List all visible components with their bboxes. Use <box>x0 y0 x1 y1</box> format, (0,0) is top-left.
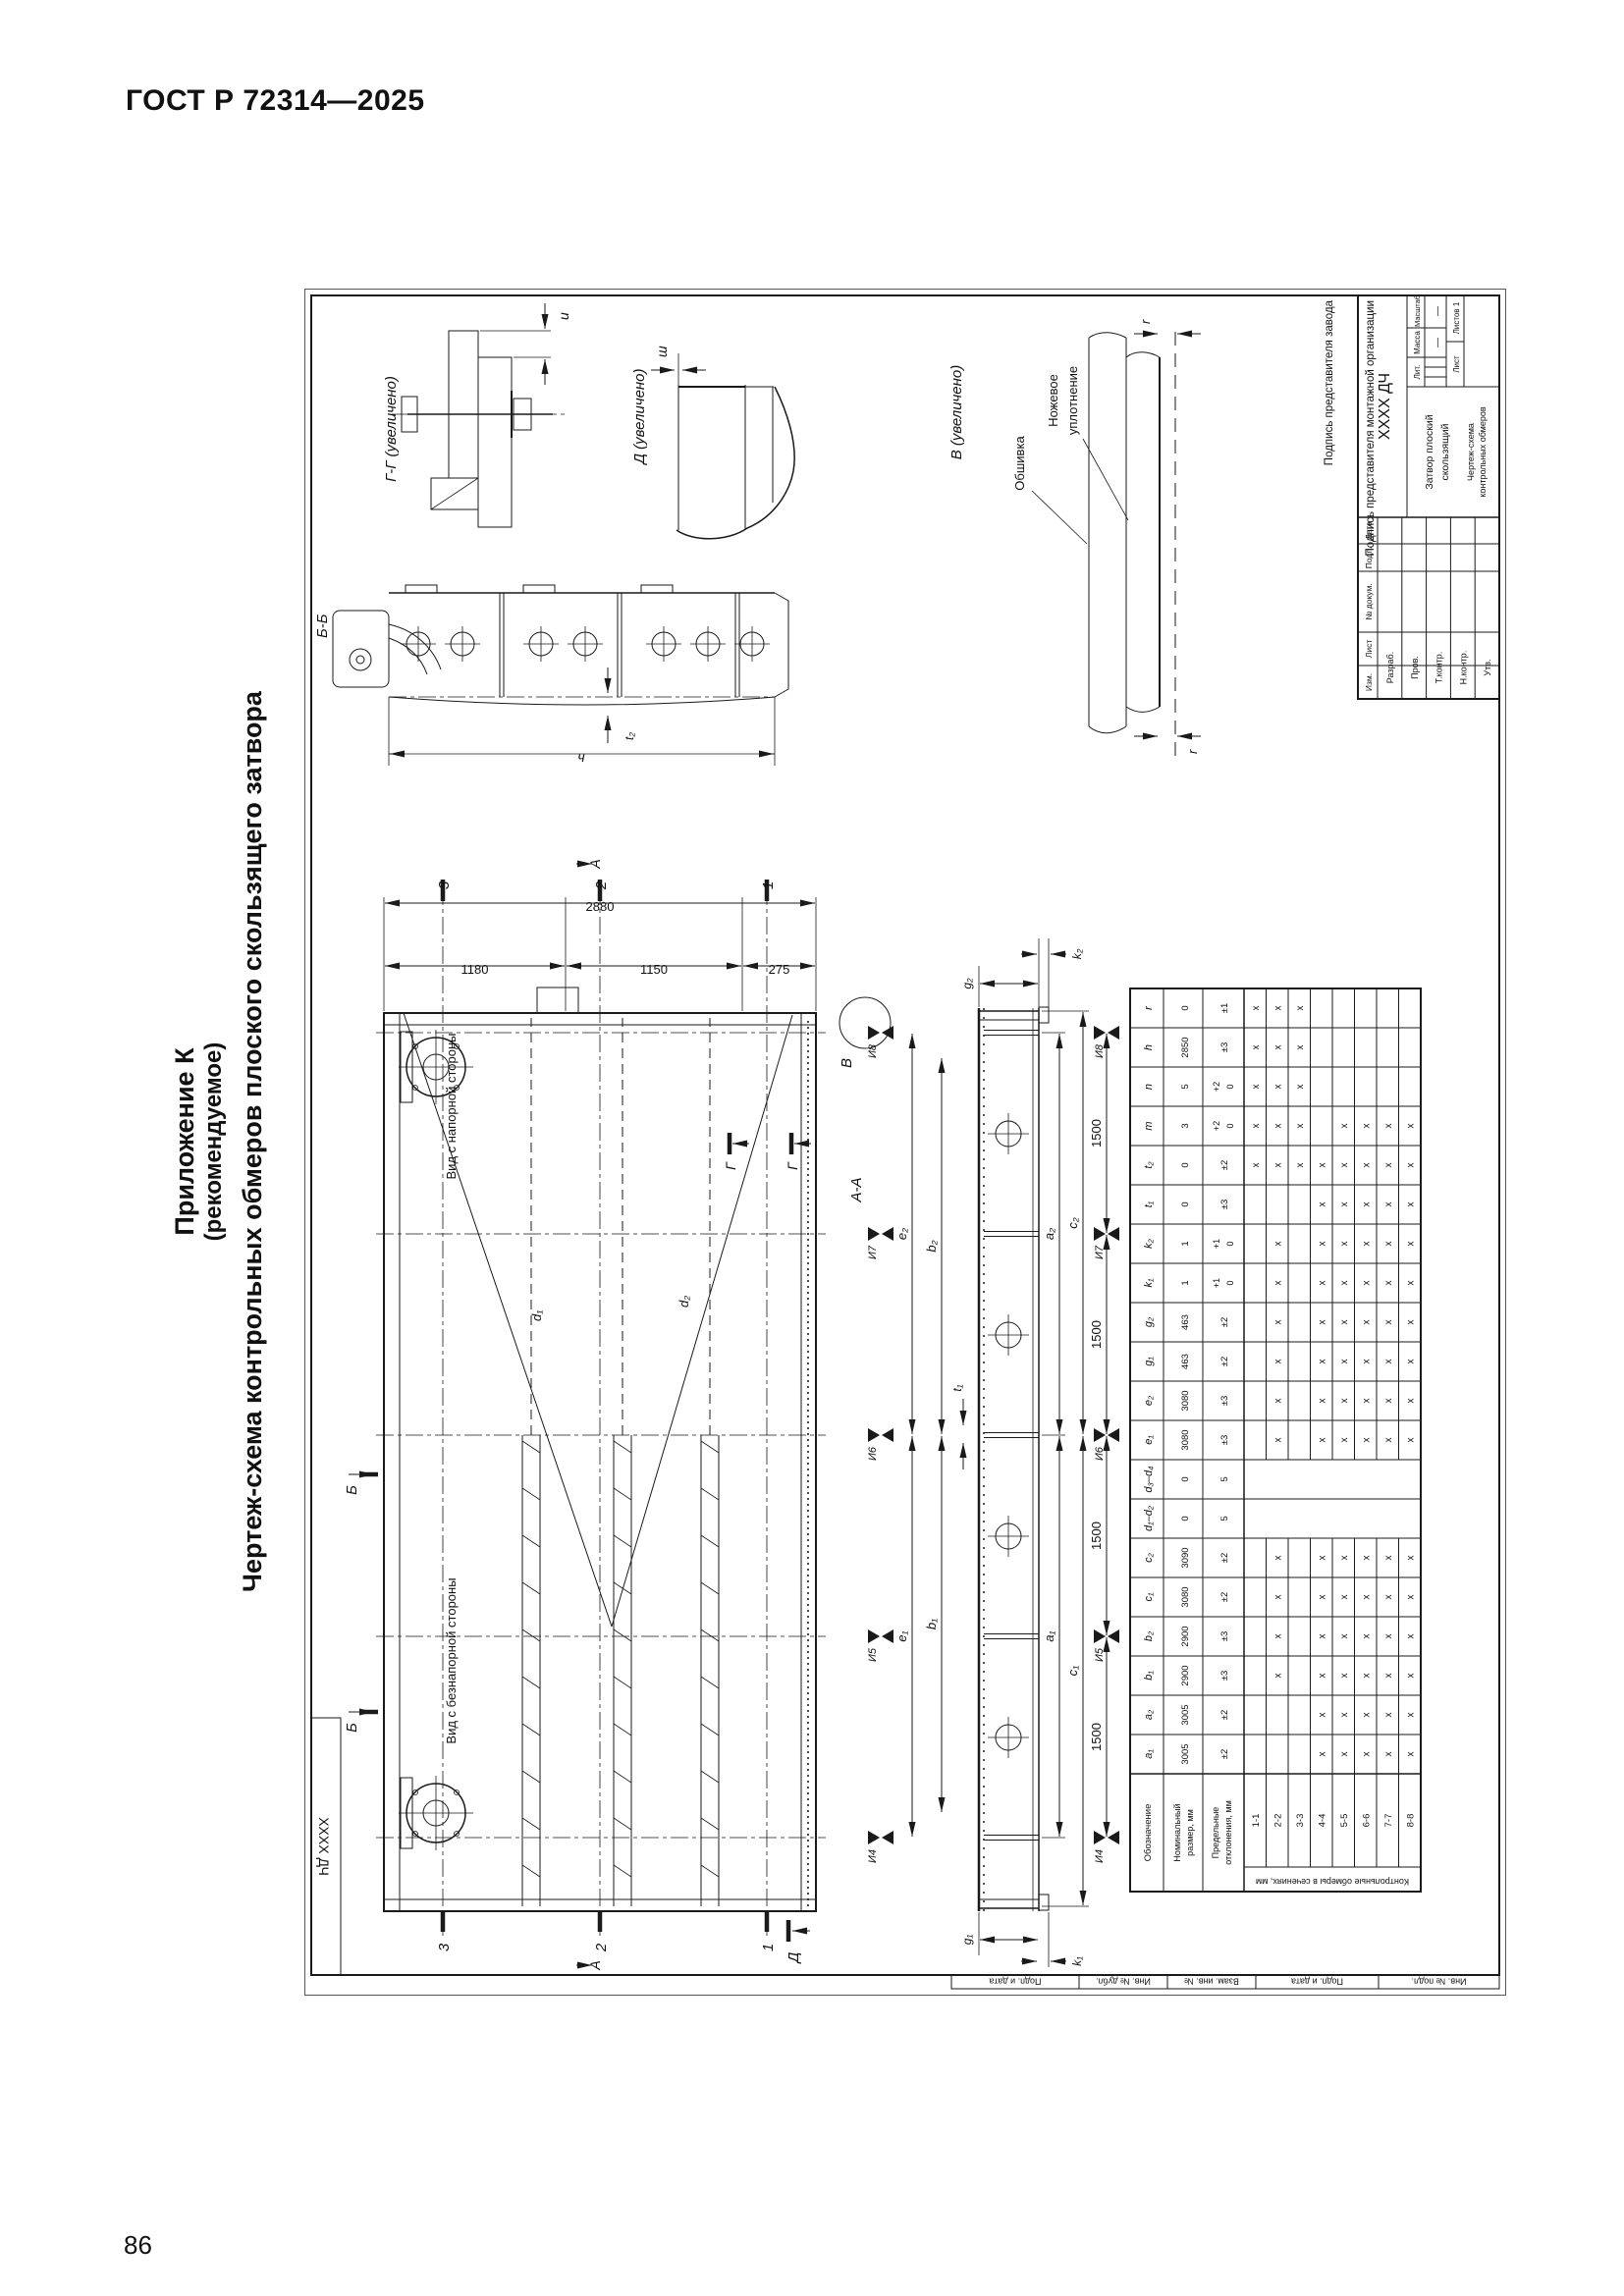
section-g-mark: Г <box>723 1161 738 1170</box>
margin-label: Подп. и дата <box>989 1977 1041 1987</box>
appendix-subtitle-kind: (рекомендуемое) <box>200 405 228 1878</box>
diagonal-d2 <box>612 1015 792 1627</box>
section-g-mark: Г <box>785 1161 800 1170</box>
table-x-mark: х <box>1295 1085 1306 1090</box>
table-tolerance-value: 0 <box>1225 1280 1235 1285</box>
bb-camber-dim: t₂ <box>623 732 636 740</box>
line <box>614 1582 631 1594</box>
line <box>522 1535 540 1547</box>
table-x-mark: х <box>1406 1360 1417 1364</box>
table-x-mark: х <box>1362 1713 1373 1718</box>
table-tolerance-value: 5 <box>1219 1516 1230 1521</box>
table-col-header: g₁ <box>1143 1357 1155 1366</box>
section-bb-generated <box>401 585 770 697</box>
table-label-tolerance: Предельные <box>1211 1807 1220 1859</box>
document-page: { "page": { "standard": "ГОСТ Р 72314—20… <box>0 0 1624 2296</box>
dim-label: a₂ <box>1042 1228 1056 1240</box>
table-col-header: k₁ <box>1143 1278 1155 1288</box>
height-seg-dim: 1180 <box>461 962 489 977</box>
table-x-mark: х <box>1295 1124 1306 1129</box>
table-tolerance-value: ±2 <box>1219 1710 1230 1721</box>
table-nominal-value: 2850 <box>1180 1037 1191 1057</box>
line <box>701 1535 719 1547</box>
step-dim: 1500 <box>1089 1723 1104 1751</box>
drawing-title: Чертеж-схема контрольных обмеров плоског… <box>238 405 268 1878</box>
table-x-mark: х <box>1295 1163 1306 1168</box>
table-x-mark: х <box>1406 1163 1417 1168</box>
table-nominal-value: 2900 <box>1180 1665 1191 1685</box>
page-number: 86 <box>124 2230 152 2261</box>
table-x-mark: х <box>1339 1242 1350 1247</box>
table-x-mark: х <box>1339 1595 1350 1600</box>
table-col-header: d₁–d₂ <box>1143 1505 1155 1531</box>
table-x-mark: х <box>1339 1634 1350 1639</box>
stamp-doc-type: Чертеж-схема <box>1466 423 1476 481</box>
line <box>614 1724 631 1735</box>
table-x-mark: х <box>1362 1242 1373 1247</box>
table-x-mark: х <box>1339 1674 1350 1679</box>
table-tolerance-value: ±3 <box>1219 1200 1230 1210</box>
measure-point-label: И7 <box>1094 1245 1106 1259</box>
pressure-side-label: Вид с напорной стороны <box>444 1034 459 1180</box>
dim-label: e₂ <box>894 1228 909 1240</box>
table-x-mark: х <box>1318 1163 1328 1168</box>
table-x-mark: х <box>1383 1674 1394 1679</box>
table-x-mark: х <box>1339 1556 1350 1561</box>
stamp-role-label: Т.контр. <box>1435 652 1444 684</box>
table-x-mark: х <box>1362 1752 1373 1757</box>
line <box>701 1818 719 1830</box>
section-mark: 3 <box>436 1943 453 1951</box>
end-seal-shoe <box>1039 1007 1049 1023</box>
table-x-mark: х <box>1318 1360 1328 1364</box>
table-x-mark: х <box>1318 1438 1328 1443</box>
stamp-header-col: № докум. <box>1364 583 1374 619</box>
line <box>614 1629 631 1641</box>
table-col-header: a₂ <box>1143 1709 1155 1720</box>
line <box>614 1677 631 1688</box>
measure-point-mark <box>868 1629 893 1643</box>
table-tolerance-value: ±2 <box>1219 1749 1230 1760</box>
table-x-mark: х <box>1406 1242 1417 1247</box>
end-seal-shoe <box>1039 1895 1049 1910</box>
side-bracket <box>537 988 578 1013</box>
table-x-mark: х <box>1383 1281 1394 1286</box>
dim-label: c₂ <box>1065 1217 1080 1229</box>
detail-v-circle <box>839 997 891 1048</box>
table-nominal-value: 0 <box>1180 1476 1191 1481</box>
standard-number: ГОСТ Р 72314—2025 <box>126 84 425 118</box>
dim-label: a₁ <box>1042 1630 1056 1641</box>
table-x-mark: х <box>1273 1006 1284 1011</box>
section-aa-label: А-А <box>848 1177 865 1202</box>
table-x-mark: х <box>1339 1713 1350 1718</box>
g2-dim: g₂ <box>960 978 974 989</box>
table-x-mark: х <box>1273 1399 1284 1404</box>
table-x-mark: х <box>1273 1674 1284 1679</box>
main-view-generated: 3322АА11ДББГГ118011502752880 <box>344 859 826 1970</box>
table-x-mark: х <box>1318 1634 1328 1639</box>
table-x-mark: х <box>1362 1556 1373 1561</box>
measure-point-mark <box>868 1227 893 1241</box>
table-x-mark: х <box>1318 1281 1328 1286</box>
line <box>522 1724 540 1735</box>
table-nominal-value: 3005 <box>1180 1704 1191 1725</box>
table-nominal-value: 2900 <box>1180 1626 1191 1646</box>
line <box>701 1865 719 1877</box>
table-x-mark: х <box>1339 1360 1350 1364</box>
drawing-sheet: ХХХХ ДЧ d₁ d₂ Вид с безнапорной стороны … <box>305 290 1505 1995</box>
table-x-mark: х <box>1273 1124 1284 1129</box>
table-x-mark: х <box>1339 1202 1350 1207</box>
table-col-header: a₁ <box>1143 1749 1155 1759</box>
dim-label: b₁ <box>924 1619 939 1629</box>
table-x-mark: х <box>1318 1320 1328 1325</box>
detail-v-mark: В <box>839 1058 855 1068</box>
measure-point-label: И8 <box>1094 1043 1106 1058</box>
table-x-mark: х <box>1295 1045 1306 1050</box>
table-x-mark: х <box>1339 1124 1350 1129</box>
height-seg-dim: 275 <box>769 962 790 977</box>
table-col-header: e₂ <box>1143 1395 1155 1406</box>
margin-label: Инв. № подл. <box>1411 1977 1466 1987</box>
d-gap-dim: ш <box>654 346 670 357</box>
table-x-mark: х <box>1251 1163 1262 1168</box>
table-x-mark: х <box>1273 1360 1284 1364</box>
table-x-mark: х <box>1273 1242 1284 1247</box>
appendix-title: Приложение К <box>170 405 200 1878</box>
line <box>522 1441 540 1453</box>
knife-seal-callout-2: уплотнение <box>1065 366 1080 435</box>
table-x-mark: х <box>1406 1713 1417 1718</box>
line <box>614 1771 631 1783</box>
detail-d: Д (увеличено) ш <box>631 346 794 539</box>
table-nominal-value: 0 <box>1180 1516 1191 1521</box>
table-nominal-value: 3080 <box>1180 1429 1191 1450</box>
table-tolerance-value: ±2 <box>1219 1553 1230 1564</box>
table-nominal-value: 3 <box>1180 1123 1191 1128</box>
line <box>701 1629 719 1641</box>
table-x-mark: х <box>1383 1320 1394 1325</box>
title-block: Изм.Лист№ докум.Подп.ДатаРазраб.Пров.Т.к… <box>1358 295 1499 699</box>
table-row-label: 5-5 <box>1339 1814 1350 1828</box>
table-col-header: e₁ <box>1143 1435 1155 1445</box>
k2-dim: k₂ <box>1070 948 1084 959</box>
table-row-label: 1-1 <box>1251 1814 1262 1828</box>
table-row-label: 2-2 <box>1273 1814 1284 1828</box>
line <box>701 1677 719 1688</box>
table-nominal-value: 1 <box>1180 1280 1191 1285</box>
table-x-mark: х <box>1406 1124 1417 1129</box>
table-nominal-value: 0 <box>1180 1162 1191 1167</box>
table-tolerance-value: ±2 <box>1219 1160 1230 1171</box>
table-x-mark: х <box>1318 1242 1328 1247</box>
sheet-frame <box>311 295 1499 1975</box>
g1-dim: g₁ <box>960 1935 974 1946</box>
section-mark: 1 <box>760 1944 777 1951</box>
table-x-mark: х <box>1339 1438 1350 1443</box>
margin-label: Взам. инв. № <box>1184 1977 1239 1987</box>
measurement-table: ОбозначениеНоминальныйразмер, ммПредельн… <box>1130 988 1421 1892</box>
table-x-mark: х <box>1383 1124 1394 1129</box>
table-x-mark: х <box>1406 1634 1417 1639</box>
dim-label: e₁ <box>894 1630 909 1641</box>
table-x-mark: х <box>1318 1595 1328 1600</box>
table-label-designation: Обозначение <box>1143 1804 1154 1862</box>
stamp-role-label: Н.контр. <box>1458 651 1468 685</box>
table-label-nominal: Номинальный <box>1172 1803 1182 1861</box>
line <box>614 1441 631 1453</box>
table-col-header: m <box>1143 1121 1155 1130</box>
table-x-mark: х <box>1362 1399 1373 1404</box>
table-x-mark: х <box>1362 1320 1373 1325</box>
table-tolerance-value: ±3 <box>1219 1671 1230 1682</box>
detail-gg: Г-Г (увеличено) u <box>383 303 571 527</box>
section-mark: 2 <box>593 881 610 890</box>
table-x-mark: х <box>1383 1438 1394 1443</box>
step-dim: 1500 <box>1089 1522 1104 1550</box>
line <box>522 1771 540 1783</box>
bb-length-dim: ч <box>577 749 584 765</box>
line <box>522 1865 540 1877</box>
table-tolerance-value: ±2 <box>1219 1592 1230 1603</box>
table-nominal-value: 1 <box>1180 1241 1191 1246</box>
step-dim: 1500 <box>1089 1320 1104 1349</box>
table-nominal-value: 3005 <box>1180 1743 1191 1764</box>
table-x-mark: х <box>1406 1674 1417 1679</box>
edge-pad <box>641 585 673 593</box>
t1-dim: t₁ <box>950 1384 964 1391</box>
table-label-sections: Контрольные обмеры в сечениях, мм <box>1256 1877 1409 1887</box>
table-x-mark: х <box>1406 1752 1417 1757</box>
table-col-header: c₂ <box>1143 1552 1155 1563</box>
table-x-mark: х <box>1362 1634 1373 1639</box>
edge-pad <box>523 585 555 593</box>
detail-gg-label: Г-Г (увеличено) <box>383 376 400 482</box>
table-x-mark: х <box>1339 1752 1350 1757</box>
table-x-mark: х <box>1273 1595 1284 1600</box>
table-x-mark: х <box>1362 1202 1373 1207</box>
table-x-mark: х <box>1339 1281 1350 1286</box>
table-nominal-value: 0 <box>1180 1005 1191 1010</box>
table-x-mark: х <box>1318 1202 1328 1207</box>
table-x-mark: х <box>1318 1556 1328 1561</box>
table-x-mark: х <box>1406 1595 1417 1600</box>
table-x-mark: х <box>1362 1360 1373 1364</box>
line <box>522 1582 540 1594</box>
stamp-name: скользящий <box>1439 423 1451 480</box>
table-x-mark: х <box>1383 1202 1394 1207</box>
table-x-mark: х <box>1383 1556 1394 1561</box>
table-col-header: r <box>1143 1005 1155 1010</box>
stamp-mass-value: — <box>1433 338 1443 347</box>
section-bb-view: Б-Б ч t₂ <box>314 593 788 766</box>
stamp-header-col: Подп. <box>1364 547 1374 569</box>
table-x-mark: х <box>1339 1399 1350 1404</box>
dim-label: b₂ <box>924 1240 939 1252</box>
table-tolerance-value: 5 <box>1219 1476 1230 1481</box>
stamp-lit-label: Лит. <box>1413 365 1422 380</box>
table-col-header: n <box>1143 1084 1155 1090</box>
stamp-header-col: Дата <box>1364 521 1374 540</box>
table-x-mark: х <box>1362 1124 1373 1129</box>
stamp-doc-code: ХХХХ ДЧ <box>1377 373 1393 440</box>
line <box>701 1724 719 1735</box>
skin-callout: Обшивка <box>1012 436 1027 491</box>
table-nominal-value: 3080 <box>1180 1586 1191 1607</box>
corner-code: ХХХХ ДЧ <box>316 1817 332 1876</box>
table-row-label: 4-4 <box>1318 1814 1328 1828</box>
table-x-mark: х <box>1273 1281 1284 1286</box>
stamp-header-col: Изм. <box>1364 673 1374 691</box>
table-label-nominal: размер, мм <box>1185 1809 1195 1856</box>
line <box>701 1488 719 1500</box>
table-tolerance-value: ±1 <box>1219 1003 1230 1014</box>
detail-v-label: В (увеличено) <box>948 365 965 460</box>
table-nominal-value: 463 <box>1180 1354 1191 1369</box>
table-tolerance-value: ±3 <box>1219 1396 1230 1407</box>
table-x-mark: х <box>1362 1281 1373 1286</box>
table-x-mark: х <box>1383 1163 1394 1168</box>
table-row-label: 8-8 <box>1406 1814 1417 1828</box>
table-tolerance-value: 0 <box>1225 1084 1235 1089</box>
table-nominal-value: 463 <box>1180 1314 1191 1330</box>
detail-v: В (увеличено) r r Обшивка Ножевое уплотн… <box>948 319 1201 756</box>
section-b-mark: Б <box>344 1485 360 1495</box>
k1-dim: k₁ <box>1070 1956 1084 1966</box>
table-col-header: b₂ <box>1143 1630 1155 1641</box>
table-x-mark: х <box>1383 1399 1394 1404</box>
table-x-mark: х <box>1251 1045 1262 1050</box>
table-x-mark: х <box>1383 1713 1394 1718</box>
measure-point-label: И6 <box>867 1446 879 1461</box>
no-pressure-side-label: Вид с безнапорной стороны <box>444 1577 459 1743</box>
height-seg-dim: 1150 <box>640 962 668 977</box>
table-row-label: 3-3 <box>1295 1814 1306 1828</box>
line <box>522 1677 540 1688</box>
table-x-mark: х <box>1406 1320 1417 1325</box>
stamp-role-label: Утв. <box>1483 659 1492 675</box>
table-x-mark: х <box>1318 1399 1328 1404</box>
table-nominal-value: 5 <box>1180 1084 1191 1089</box>
table-x-mark: х <box>1362 1595 1373 1600</box>
section-b-mark: Б <box>344 1723 360 1733</box>
section-bb-label: Б-Б <box>314 614 331 638</box>
stamp-scale-label: Масштаб <box>1413 295 1422 327</box>
table-x-mark: х <box>1383 1595 1394 1600</box>
table-tolerance-value: ±3 <box>1219 1435 1230 1446</box>
table-col-header: c₁ <box>1143 1592 1155 1602</box>
table-tolerance-value: ±2 <box>1219 1317 1230 1328</box>
table-x-mark: х <box>1318 1713 1328 1718</box>
table-row-label: 7-7 <box>1383 1814 1394 1828</box>
table-tolerance-value: 0 <box>1225 1123 1235 1128</box>
table-x-mark: х <box>1251 1085 1262 1090</box>
measure-point-label: И5 <box>1094 1647 1106 1662</box>
diagonal-d1 <box>404 1013 612 1627</box>
table-x-mark: х <box>1383 1360 1394 1364</box>
table-col-header: k₂ <box>1143 1238 1155 1249</box>
v-gap-right-dim: r <box>1138 319 1153 324</box>
stamp-name: Затвор плоский <box>1424 414 1435 489</box>
table-tolerance-value: +1 <box>1212 1278 1221 1288</box>
table-tolerance-value: +2 <box>1212 1082 1221 1092</box>
margin-label: Инв. № дубл. <box>1096 1977 1151 1987</box>
table-tolerance-value: 0 <box>1225 1241 1235 1246</box>
edge-pad <box>406 585 437 593</box>
table-x-mark: х <box>1406 1202 1417 1207</box>
line <box>522 1629 540 1641</box>
stamp-role-label: Пров. <box>1410 656 1420 679</box>
line <box>701 1771 719 1783</box>
table-tolerance-value: ±3 <box>1219 1042 1230 1053</box>
line <box>522 1818 540 1830</box>
table-x-mark: х <box>1339 1320 1350 1325</box>
stamp-sheet-label: Лист <box>1452 355 1461 373</box>
table-x-mark: х <box>1273 1634 1284 1639</box>
margin-label: Подп. и дата <box>1291 1977 1343 1987</box>
line <box>614 1818 631 1830</box>
table-x-mark: х <box>1318 1752 1328 1757</box>
table-tolerance-value: ±2 <box>1219 1357 1230 1367</box>
table-x-mark: х <box>1339 1163 1350 1168</box>
measure-point-mark <box>868 1831 893 1844</box>
dim-label: c₁ <box>1065 1666 1080 1677</box>
step-dim: 1500 <box>1089 1119 1104 1148</box>
table-tolerance-value: +1 <box>1212 1239 1221 1249</box>
table-label-tolerance: отклонения, мм <box>1223 1800 1233 1865</box>
appendix-title-block: Приложение К (рекомендуемое) Чертеж-схем… <box>170 405 298 1878</box>
table-x-mark: х <box>1406 1438 1417 1443</box>
line <box>522 1488 540 1500</box>
drawing-sheet-boundary: ХХХХ ДЧ d₁ d₂ Вид с безнапорной стороны … <box>304 289 1506 1996</box>
table-x-mark: х <box>1273 1045 1284 1050</box>
table-nominal-value: 3090 <box>1180 1547 1191 1568</box>
line <box>614 1488 631 1500</box>
section-mark: 1 <box>760 881 777 889</box>
table-x-mark: х <box>1362 1674 1373 1679</box>
table-x-mark: х <box>1383 1752 1394 1757</box>
measure-point-label: И5 <box>867 1647 879 1662</box>
height-total-dim: 2880 <box>586 899 615 914</box>
frame-margin-labels: Подп. и датаИнв. № дубл.Взам. инв. №Подп… <box>951 1975 1499 1989</box>
cambered-edge <box>389 697 775 705</box>
stamp-sheets-label: Листов 1 <box>1452 301 1461 334</box>
table-x-mark: х <box>1273 1163 1284 1168</box>
stamp-scale-value: — <box>1433 306 1443 316</box>
section-mark: 2 <box>593 1943 610 1952</box>
measure-point-label: И8 <box>867 1043 879 1058</box>
measure-point-label: И6 <box>1094 1446 1106 1461</box>
table-col-header: d₃–d₄ <box>1143 1466 1155 1492</box>
line <box>614 1865 631 1877</box>
table-x-mark: х <box>1295 1006 1306 1011</box>
table-x-mark: х <box>1383 1634 1394 1639</box>
table-col-header: g₂ <box>1143 1316 1155 1327</box>
table-x-mark: х <box>1362 1438 1373 1443</box>
diagonal-d2-label: d₂ <box>677 1296 691 1308</box>
factory-signature-line: Подпись представителя завода <box>1324 299 1335 465</box>
gg-gap-dim: u <box>556 312 571 320</box>
line <box>701 1441 719 1453</box>
line <box>701 1582 719 1594</box>
table-tolerance-value: +2 <box>1212 1121 1221 1131</box>
table-x-mark: х <box>1251 1124 1262 1129</box>
measure-point-label: И4 <box>1094 1849 1106 1863</box>
measure-point-label: И4 <box>867 1849 879 1863</box>
section-mark: 3 <box>436 881 453 889</box>
stamp-mass-label: Масса <box>1413 331 1422 354</box>
